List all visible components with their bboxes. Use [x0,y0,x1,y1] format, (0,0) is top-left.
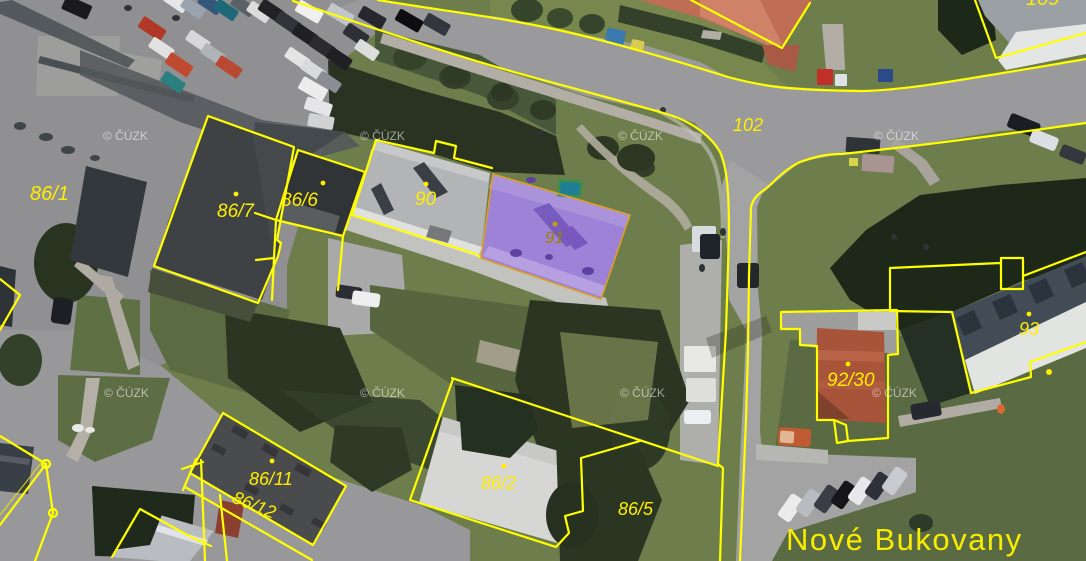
svg-text:86/6: 86/6 [281,190,318,211]
svg-text:© ČÚZK: © ČÚZK [360,128,405,143]
svg-text:90: 90 [415,189,437,210]
svg-text:86/11: 86/11 [249,469,293,489]
svg-text:© ČÚZK: © ČÚZK [104,385,149,400]
svg-text:Nové Bukovany: Nové Bukovany [786,522,1023,557]
svg-text:© ČÚZK: © ČÚZK [618,128,663,143]
svg-text:© ČÚZK: © ČÚZK [872,385,917,400]
svg-text:93: 93 [1019,319,1039,339]
svg-text:86/1: 86/1 [30,183,69,205]
svg-text:91: 91 [545,228,564,247]
svg-text:© ČÚZK: © ČÚZK [620,385,665,400]
svg-text:© ČÚZK: © ČÚZK [874,128,919,143]
svg-text:© ČÚZK: © ČÚZK [103,128,148,143]
svg-text:86/2: 86/2 [481,473,516,493]
svg-text:© ČÚZK: © ČÚZK [360,385,405,400]
svg-text:86/7: 86/7 [217,201,255,222]
svg-text:102: 102 [733,115,763,135]
svg-text:109: 109 [1026,0,1059,10]
svg-text:86/5: 86/5 [618,499,654,519]
svg-text:92/30: 92/30 [827,370,875,391]
